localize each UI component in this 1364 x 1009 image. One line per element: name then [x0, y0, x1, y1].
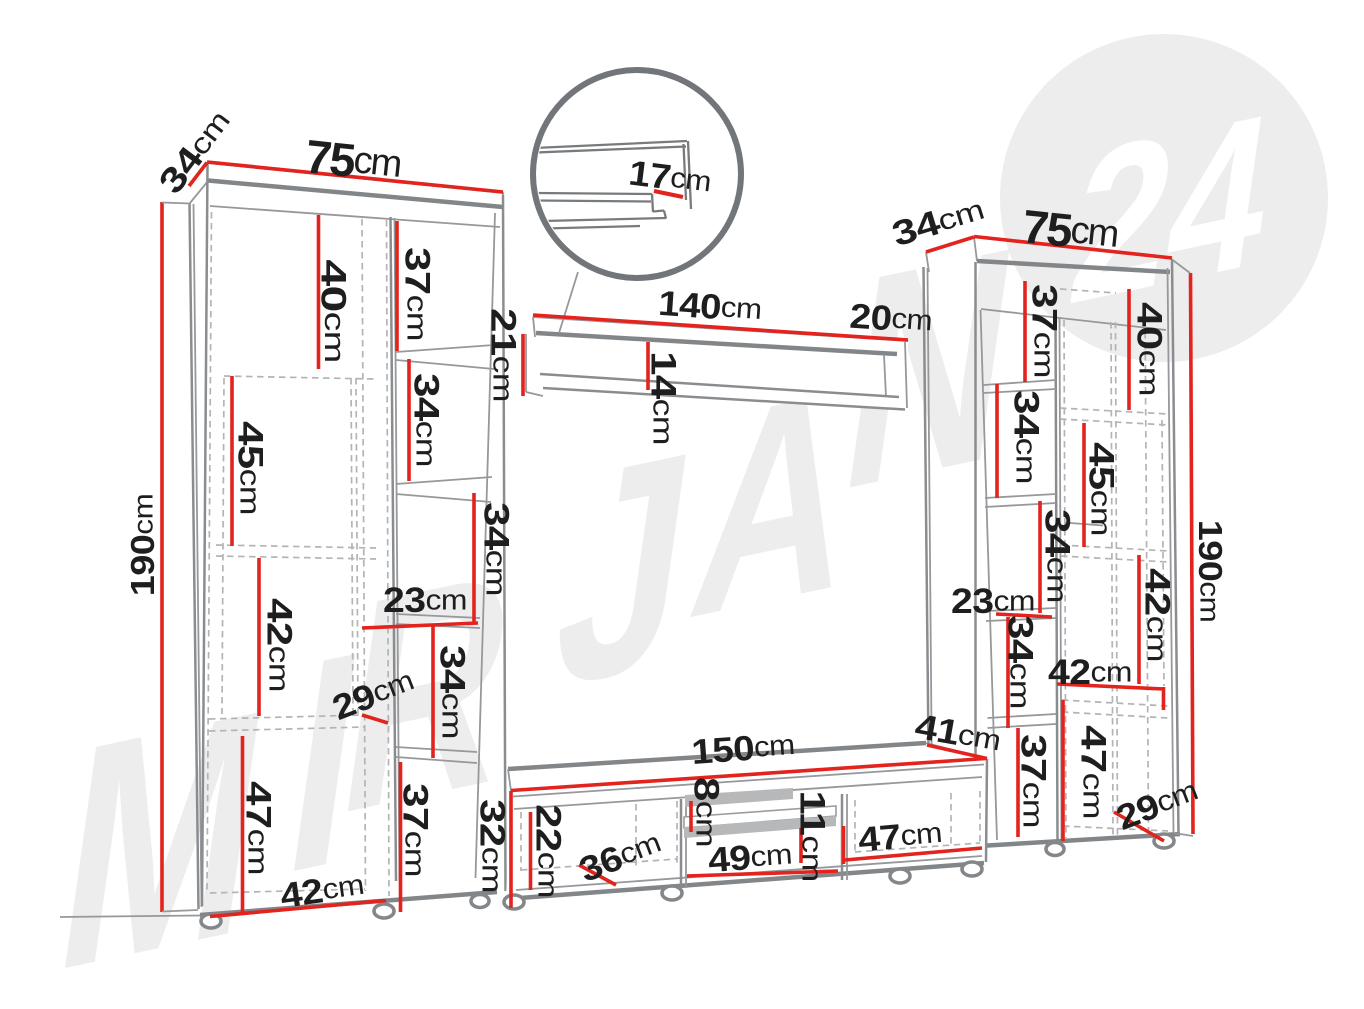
svg-text:34cm: 34cm: [407, 373, 446, 467]
svg-text:42cm: 42cm: [1138, 568, 1177, 662]
svg-text:11cm: 11cm: [793, 790, 832, 881]
svg-text:22cm: 22cm: [529, 804, 568, 898]
svg-text:37cm: 37cm: [1025, 284, 1064, 378]
svg-text:21cm: 21cm: [484, 308, 523, 402]
svg-text:34cm: 34cm: [477, 502, 516, 596]
svg-text:40cm: 40cm: [1130, 302, 1169, 396]
svg-text:34cm: 34cm: [1007, 390, 1046, 484]
svg-text:37cm: 37cm: [396, 783, 435, 877]
svg-text:190cm: 190cm: [124, 494, 161, 597]
svg-text:140cm: 140cm: [657, 283, 763, 329]
svg-text:8cm: 8cm: [687, 777, 726, 847]
svg-text:J: J: [539, 386, 710, 753]
svg-text:45cm: 45cm: [231, 421, 270, 515]
svg-text:34cm: 34cm: [433, 645, 472, 739]
svg-text:34cm: 34cm: [151, 103, 238, 201]
svg-text:32cm: 32cm: [473, 799, 512, 893]
svg-text:190cm: 190cm: [1191, 520, 1228, 623]
svg-text:47cm: 47cm: [1074, 725, 1113, 819]
svg-text:34cm: 34cm: [1001, 615, 1040, 709]
svg-text:40cm: 40cm: [314, 259, 353, 362]
svg-text:75cm: 75cm: [303, 129, 403, 192]
svg-text:45cm: 45cm: [1082, 442, 1121, 536]
svg-text:29cm: 29cm: [1111, 771, 1204, 838]
svg-text:47cm: 47cm: [239, 781, 278, 875]
svg-text:37cm: 37cm: [1014, 734, 1053, 828]
svg-text:42cm: 42cm: [260, 598, 299, 692]
svg-text:37cm: 37cm: [398, 247, 437, 341]
svg-text:42cm: 42cm: [1048, 652, 1132, 692]
svg-text:23cm: 23cm: [383, 580, 467, 620]
svg-text:14cm: 14cm: [644, 351, 683, 445]
svg-text:34cm: 34cm: [1038, 509, 1077, 603]
